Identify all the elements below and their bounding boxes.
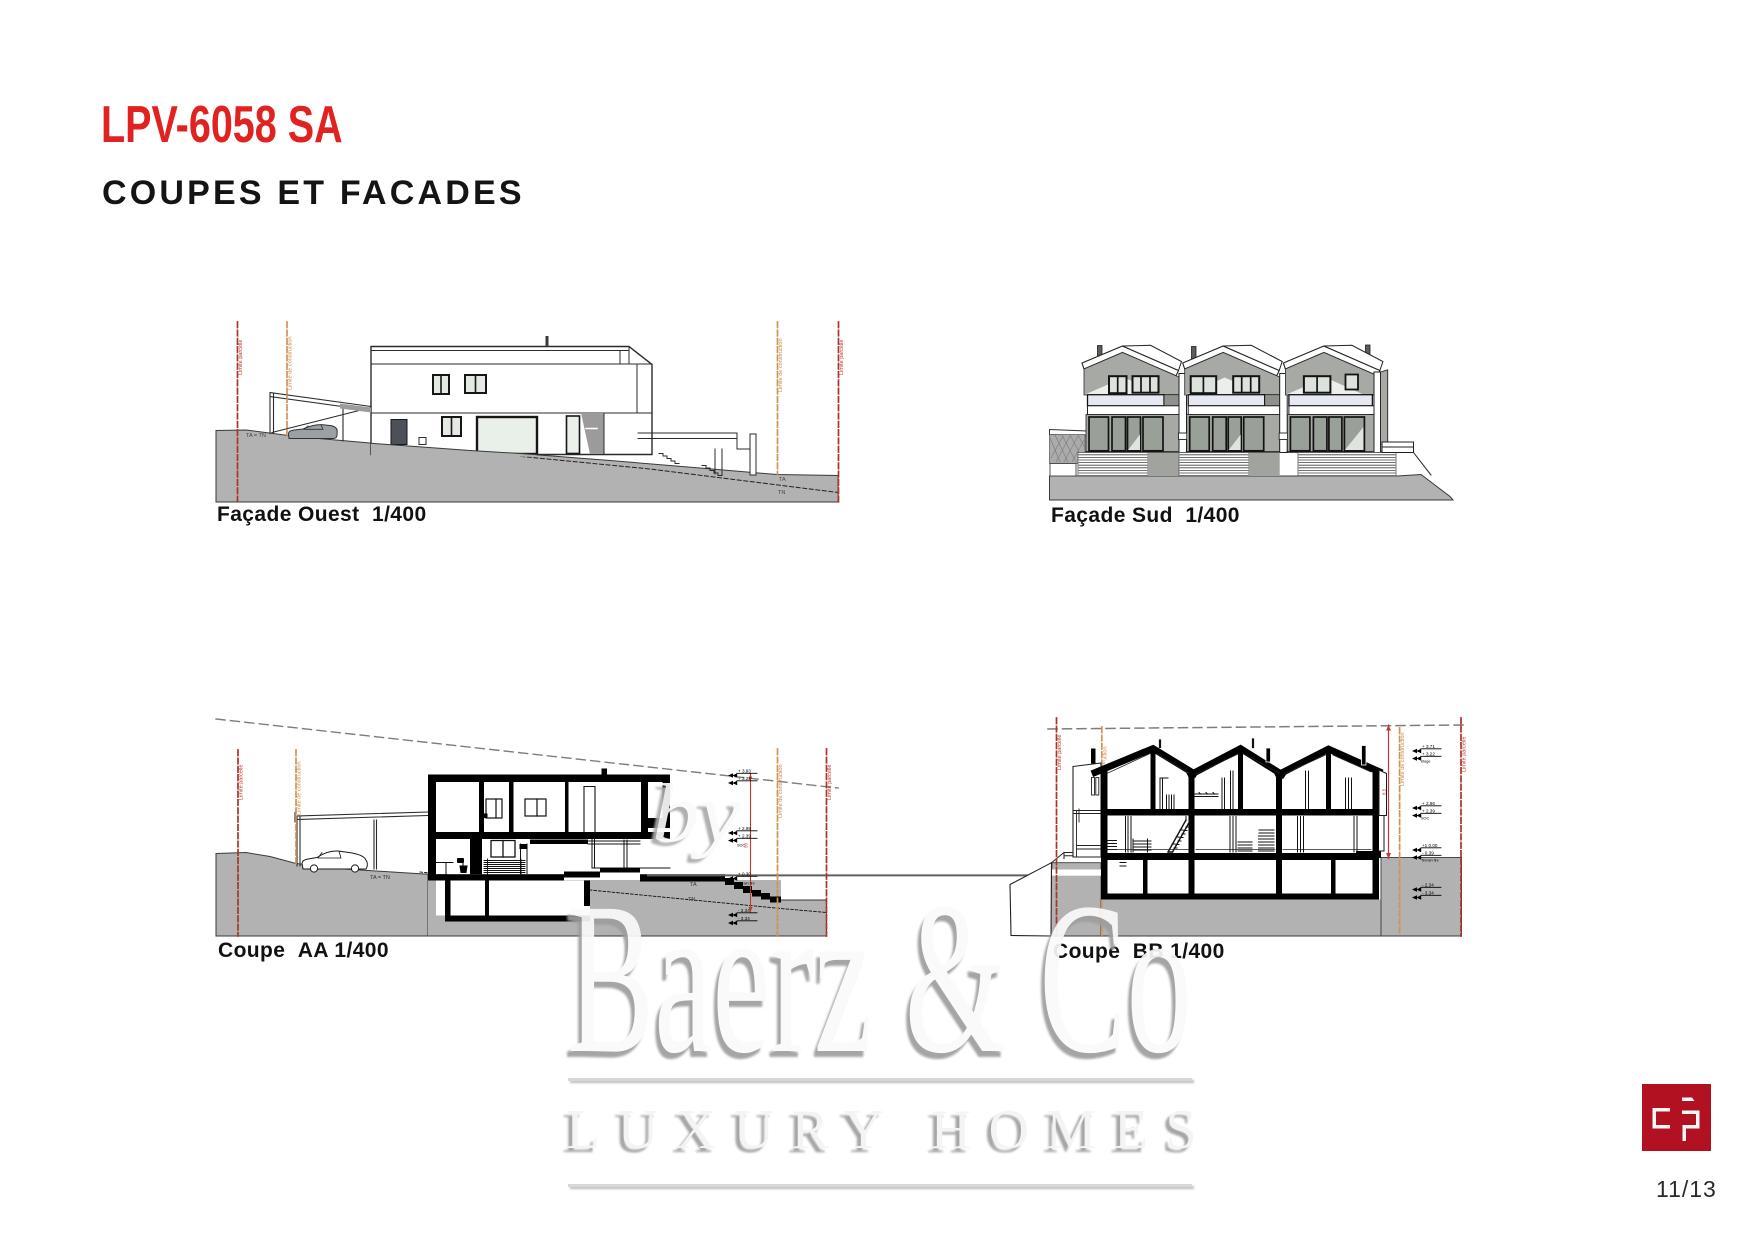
svg-text:+ 3.22: + 3.22 [1422,751,1435,756]
svg-text:+ 3.22: + 3.22 [738,776,751,781]
svg-text:TA = TN: TA = TN [246,433,266,439]
svg-text:- 3.34: - 3.34 [1422,890,1434,895]
svg-text:Limite parcelle: Limite parcelle [827,765,833,800]
svg-text:- 0.39: - 0.39 [1422,850,1434,855]
svg-text:SOC: SOC [1421,817,1429,821]
svg-text:Limite de construction: Limite de construction [778,765,784,819]
svg-text:TN: TN [778,490,785,496]
svg-text:- 2.34: - 2.34 [738,908,750,913]
svg-text:TA: TA [690,882,697,888]
svg-text:+ 2.96: + 2.96 [1422,801,1435,806]
svg-text:TN: TN [688,897,695,903]
svg-text:Terrain fini: Terrain fini [1421,859,1439,863]
svg-text:Limite de construction: Limite de construction [297,762,303,816]
svg-text:- 2.34: - 2.34 [1422,882,1434,887]
svg-text:Limite parcelle: Limite parcelle [239,765,245,800]
svg-text:SOC: SOC [737,844,745,848]
svg-text:Limite de construction: Limite de construction [778,339,784,393]
svg-text:+ 0.30: + 0.30 [738,871,751,876]
svg-text:Limite parcelle: Limite parcelle [1057,735,1063,770]
svg-text:+ 2.39: + 2.39 [738,833,751,838]
svg-text:Terrain fini: Terrain fini [737,882,755,886]
svg-text:+1 0.00: +1 0.00 [1422,843,1438,848]
svg-text:Limite de construction: Limite de construction [288,337,294,391]
svg-text:TA = TN: TA = TN [370,875,390,881]
svg-text:+ 2.95: + 2.95 [738,826,751,831]
svg-text:+ 2.39: + 2.39 [1422,808,1435,813]
svg-text:+ 3.71: + 3.71 [1422,744,1435,749]
svg-text:Limite de construction: Limite de construction [1400,733,1406,787]
svg-text:- 3.34: - 3.34 [738,916,750,921]
svg-text:8.5: 8.5 [1382,788,1387,795]
svg-text:Limite parcelle: Limite parcelle [238,340,244,375]
svg-text:étage: étage [1421,760,1431,764]
svg-text:Limite parcelle: Limite parcelle [1462,737,1468,772]
svg-text:Limite parcelle: Limite parcelle [839,340,845,375]
svg-text:+ 3.93: + 3.93 [738,768,751,773]
svg-text:TA: TA [779,477,786,483]
